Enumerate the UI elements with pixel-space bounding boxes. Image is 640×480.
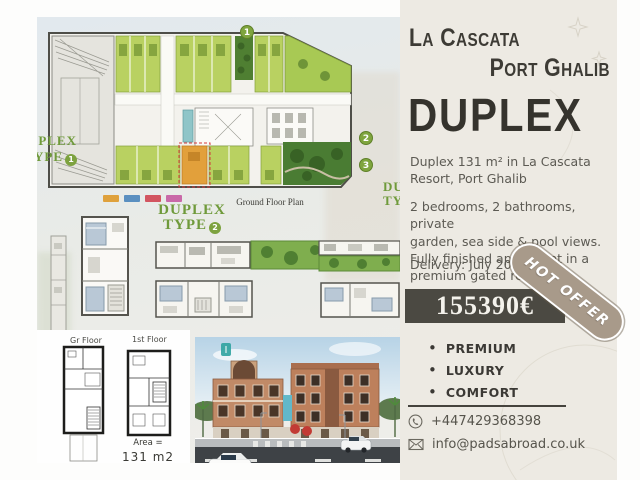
legend-chip-red bbox=[145, 195, 161, 202]
feature-comfort: • COMFORT bbox=[428, 381, 518, 403]
duplex-type1-word: TYPE bbox=[37, 149, 63, 164]
bullet-icon: • bbox=[428, 363, 437, 378]
ground-floor-caption: Ground Floor Plan bbox=[210, 197, 330, 207]
duplex-type1-line2: TYPE1 bbox=[37, 149, 77, 166]
price-value: 155390€ bbox=[436, 291, 534, 321]
contact-divider bbox=[408, 405, 566, 407]
vertical-unit-plan bbox=[80, 215, 130, 317]
duplex2-ground-plan bbox=[155, 240, 331, 270]
plan-marker-1: 1 bbox=[240, 25, 254, 39]
first-floor-label: 1st Floor bbox=[132, 335, 167, 344]
resort-title-line1: La Cascata bbox=[409, 24, 580, 54]
bullet-icon: • bbox=[428, 385, 437, 400]
resort-title: La Cascata Port Ghalib bbox=[409, 24, 610, 83]
plan-legend bbox=[103, 195, 182, 202]
area-value: 131 m2 bbox=[113, 450, 183, 463]
type1-number-badge: 1 bbox=[65, 154, 77, 166]
listing-intro: Duplex 131 m² in La Cascata Resort, Port… bbox=[410, 153, 610, 188]
plan-marker-3: 3 bbox=[359, 158, 373, 172]
ground-floor-plan-drawing bbox=[45, 24, 355, 196]
flyer-page: 1 2 3 Ground Floor Plan DUPLEX TYPE1 DUP… bbox=[0, 0, 640, 480]
feature-label: PREMIUM bbox=[446, 341, 517, 356]
phone-icon bbox=[408, 414, 423, 429]
duplex-type3-line1: DUPLEX bbox=[383, 180, 400, 194]
feature-label: LUXURY bbox=[446, 363, 504, 378]
gr-floor-label: Gr Floor bbox=[70, 336, 102, 345]
side-strip-plan bbox=[50, 235, 67, 332]
duplex3-ground-plan bbox=[318, 240, 400, 272]
email-row: info@padsabroad.co.uk bbox=[408, 437, 585, 452]
feature-label: COMFORT bbox=[446, 385, 519, 400]
email-address: info@padsabroad.co.uk bbox=[432, 437, 585, 452]
duplex-type3-label: DUPLEX TYPE3 bbox=[383, 180, 400, 210]
resort-title-line2: Port Ghalib bbox=[439, 54, 610, 84]
email-icon bbox=[408, 438, 424, 451]
type2-number-badge: 2 bbox=[209, 222, 221, 234]
legend-chip-yellow bbox=[103, 195, 119, 202]
phone-number: +447429368398 bbox=[431, 414, 541, 429]
area-equals: Area = bbox=[113, 438, 183, 448]
duplex2-first-floor-plan bbox=[155, 280, 253, 318]
resort-3d-render bbox=[195, 337, 400, 463]
legend-chip-blue bbox=[124, 195, 140, 202]
gr-floor-plan-drawing bbox=[61, 345, 107, 463]
bullet-icon: • bbox=[428, 341, 437, 356]
legend-chip-pink bbox=[166, 195, 182, 202]
plan-marker-2: 2 bbox=[359, 131, 373, 145]
feature-list: • PREMIUM • LUXURY • COMFORT bbox=[428, 337, 518, 403]
duplex-type2-label: DUPLEX TYPE2 bbox=[157, 203, 227, 234]
feature-luxury: • LUXURY bbox=[428, 359, 518, 381]
area-note: Area = 131 m2 bbox=[113, 438, 183, 463]
duplex-type3-line2: TYPE3 bbox=[383, 194, 400, 210]
product-title: DUPLEX bbox=[408, 88, 593, 142]
floorplan-zone: 1 2 3 Ground Floor Plan DUPLEX TYPE1 DUP… bbox=[37, 17, 400, 463]
duplex-type2-line2: TYPE2 bbox=[157, 218, 227, 234]
feature-premium: • PREMIUM bbox=[428, 337, 518, 359]
duplex3-first-floor-plan bbox=[320, 282, 400, 318]
phone-row: +447429368398 bbox=[408, 414, 541, 429]
duplex-type3-word: TYPE bbox=[383, 193, 400, 208]
unit-plans-card: Gr Floor 1st Floor bbox=[37, 330, 190, 463]
duplex-type1-label: DUPLEX TYPE1 bbox=[37, 133, 77, 166]
duplex-type1-line1: DUPLEX bbox=[37, 133, 77, 149]
duplex-type2-word: TYPE bbox=[163, 217, 207, 233]
first-floor-plan-drawing bbox=[125, 348, 173, 438]
duplex-type2-line1: DUPLEX bbox=[157, 203, 227, 218]
